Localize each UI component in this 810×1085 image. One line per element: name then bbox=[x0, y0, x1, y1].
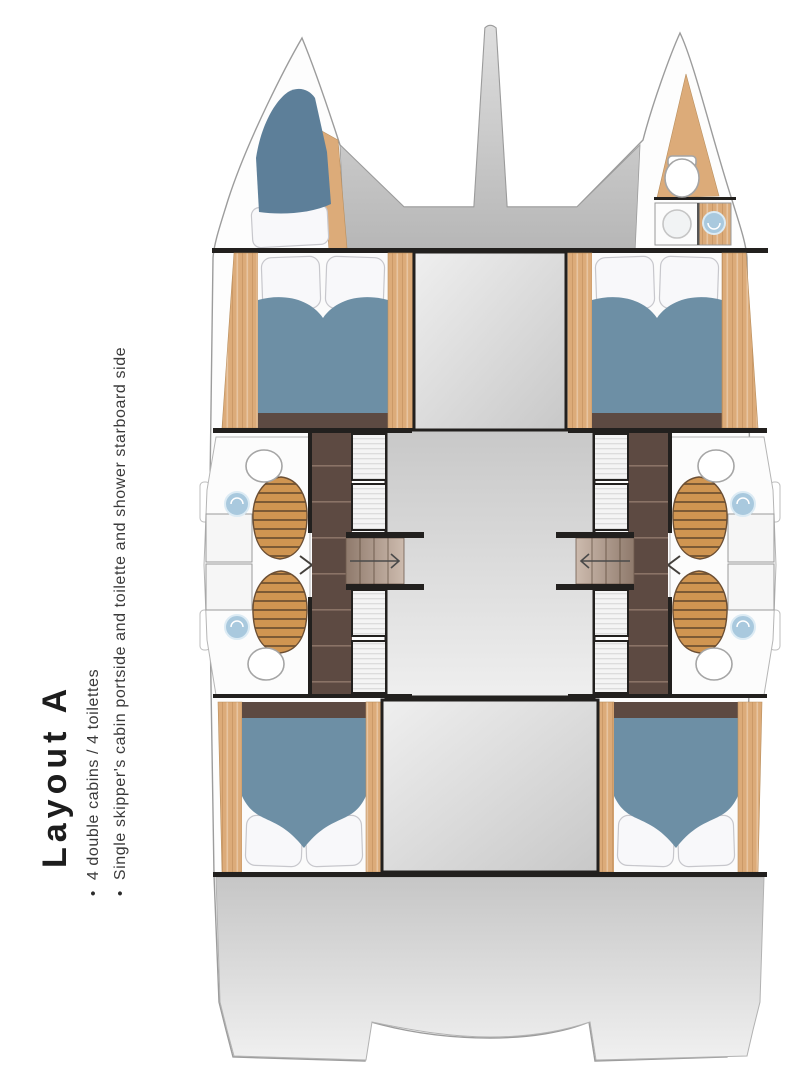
seat-cushion bbox=[352, 641, 386, 693]
vanity-counter bbox=[206, 564, 252, 610]
stair-wall bbox=[346, 584, 424, 590]
sink-icon bbox=[699, 203, 731, 245]
mid-wall bbox=[213, 429, 412, 433]
mid-wall bbox=[213, 694, 412, 698]
wood-floor-strip bbox=[388, 253, 414, 430]
seat-cushion bbox=[594, 434, 628, 480]
forward-starboard-cabin bbox=[566, 253, 767, 432]
vanity-counter bbox=[728, 514, 774, 562]
wood-floor-strip bbox=[366, 702, 382, 872]
stair-wall bbox=[556, 584, 634, 590]
vanity-counter bbox=[728, 564, 774, 610]
bullet-text-cabins: 4 double cabins / 4 toilettes bbox=[85, 669, 103, 880]
wood-floor-strip bbox=[566, 253, 592, 430]
seat-cushion bbox=[594, 590, 628, 636]
saloon bbox=[346, 430, 634, 697]
sink-icon bbox=[731, 615, 755, 639]
seat-cushion bbox=[352, 590, 386, 636]
sink-icon bbox=[225, 615, 249, 639]
sink-icon bbox=[225, 492, 249, 516]
bathroom-wall bbox=[668, 433, 672, 533]
cabin-floor bbox=[614, 702, 738, 718]
layout-label-block: Layout A • 4 double cabins / 4 toilettes… bbox=[36, 256, 139, 896]
shower-floor-icon bbox=[673, 571, 727, 653]
shower-floor-icon bbox=[253, 571, 307, 653]
aft-deck bbox=[216, 877, 764, 1060]
wood-floor-strip bbox=[738, 702, 762, 872]
toilet-icon bbox=[665, 156, 699, 197]
forward-center-locker bbox=[414, 252, 566, 430]
sink-icon bbox=[731, 492, 755, 516]
aft-center-locker bbox=[382, 700, 598, 872]
seat-cushion bbox=[594, 641, 628, 693]
layout-bullet-1: • 4 double cabins / 4 toilettes bbox=[85, 256, 103, 896]
aft-port-cabin bbox=[218, 702, 382, 872]
toilet-icon bbox=[696, 648, 732, 680]
saloon-floor bbox=[386, 430, 594, 697]
seat-cushion bbox=[594, 484, 628, 530]
seat-cushion bbox=[352, 434, 386, 480]
cabin-floor bbox=[258, 413, 388, 430]
bullet-text-skipper: Single skipper's cabin portside and toil… bbox=[112, 347, 130, 880]
toilet-icon bbox=[698, 450, 734, 482]
toilet-icon bbox=[248, 648, 284, 680]
shower-floor-icon bbox=[253, 477, 307, 559]
layout-bullet-2: • Single skipper's cabin portside and to… bbox=[112, 256, 130, 896]
wood-floor-strip bbox=[218, 702, 242, 872]
aft-starboard-cabin bbox=[598, 702, 762, 872]
stair-wall bbox=[556, 532, 634, 538]
wood-floor-strip bbox=[598, 702, 614, 872]
bathroom-wall bbox=[308, 597, 312, 697]
forward-port-cabin bbox=[213, 253, 414, 432]
stairs-starboard bbox=[576, 538, 634, 584]
stairs-port bbox=[346, 538, 404, 584]
mid-wall bbox=[568, 429, 767, 433]
mid-wall bbox=[568, 694, 767, 698]
cabin-floor bbox=[592, 413, 722, 430]
seat-cushion bbox=[352, 484, 386, 530]
cabin-floor bbox=[242, 702, 366, 718]
bathroom-wall bbox=[668, 597, 672, 697]
bathroom-wall bbox=[308, 433, 312, 533]
shower-floor-icon bbox=[673, 477, 727, 559]
wood-floor-strip bbox=[722, 253, 758, 428]
aft-crossbeam bbox=[213, 872, 767, 877]
vanity-counter bbox=[206, 514, 252, 562]
layout-title: Layout A bbox=[36, 256, 75, 868]
bow-bathroom-wall bbox=[654, 197, 736, 200]
shower-sink-divider bbox=[697, 203, 700, 245]
foredeck bbox=[340, 26, 640, 253]
toilet-icon bbox=[246, 450, 282, 482]
shower-floor-icon bbox=[655, 203, 699, 245]
bullet-dot: • bbox=[85, 890, 102, 896]
stair-wall bbox=[346, 532, 424, 538]
bullet-dot: • bbox=[112, 890, 129, 896]
